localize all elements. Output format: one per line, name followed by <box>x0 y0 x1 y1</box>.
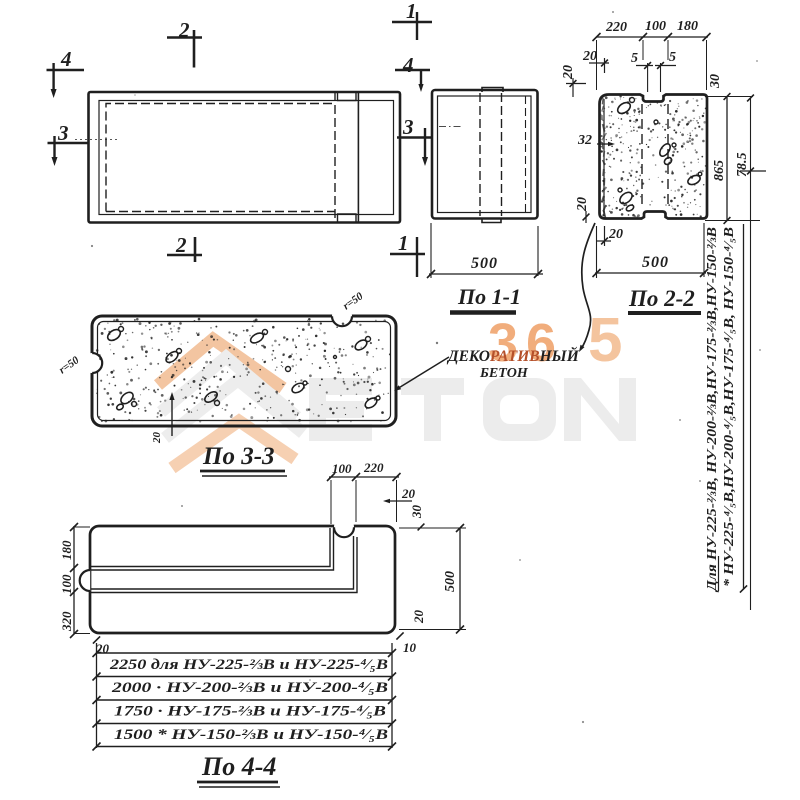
svg-text:320: 320 <box>59 611 74 632</box>
svg-text:32: 32 <box>577 133 592 148</box>
svg-text:20: 20 <box>575 197 590 212</box>
svg-text:ДЕКОРАТИВНЫЙ: ДЕКОРАТИВНЫЙ <box>446 347 580 365</box>
svg-text:180: 180 <box>677 19 698 34</box>
svg-text:3: 3 <box>57 121 69 145</box>
svg-text:100: 100 <box>332 461 352 476</box>
svg-text:10: 10 <box>403 640 417 655</box>
svg-text:По 2-2: По 2-2 <box>628 286 695 311</box>
svg-text:1750 · НУ-175-⅔В и НУ-175-⁴⁄: 1750 · НУ-175-⅔В и НУ-175-⁴⁄₅В <box>114 704 386 720</box>
svg-text:4: 4 <box>60 47 72 71</box>
svg-text:1: 1 <box>398 231 409 255</box>
svg-text:30: 30 <box>708 74 723 89</box>
svg-text:* НУ-225-⁴⁄₅В,НУ-200-⁴⁄₅В,НУ-1: * НУ-225-⁴⁄₅В,НУ-200-⁴⁄₅В,НУ-175-⁴⁄₅В, Н… <box>721 227 736 587</box>
svg-text:3: 3 <box>402 115 414 139</box>
svg-text:20: 20 <box>582 49 597 64</box>
svg-text:2: 2 <box>175 233 187 257</box>
svg-text:20: 20 <box>561 65 576 80</box>
svg-text:По 1-1: По 1-1 <box>457 284 521 309</box>
svg-text:500: 500 <box>471 255 498 272</box>
svg-text:100: 100 <box>59 574 74 594</box>
svg-text:30: 30 <box>409 505 424 520</box>
svg-text:20: 20 <box>95 641 110 656</box>
svg-text:20: 20 <box>401 486 416 501</box>
svg-text:2250 для НУ-225-⅔В и НУ-225-⁴⁄: 2250 для НУ-225-⅔В и НУ-225-⁴⁄₅В <box>109 657 388 673</box>
svg-text:500: 500 <box>642 254 669 271</box>
svg-text:1: 1 <box>406 0 417 23</box>
svg-text:20: 20 <box>151 432 163 445</box>
svg-text:По 3-3: По 3-3 <box>202 443 275 470</box>
svg-text:4: 4 <box>402 53 414 77</box>
svg-text:20: 20 <box>411 610 426 625</box>
svg-text:78.5: 78.5 <box>735 153 750 178</box>
svg-text:5: 5 <box>588 306 622 375</box>
svg-text:БЕТОН: БЕТОН <box>479 366 529 381</box>
svg-text:5: 5 <box>669 50 676 65</box>
svg-text:20: 20 <box>608 227 623 242</box>
svg-text:865: 865 <box>712 160 727 181</box>
svg-text:По 4-4: По 4-4 <box>201 752 276 781</box>
svg-text:220: 220 <box>605 20 627 35</box>
svg-text:2000 · НУ-200-⅔В и НУ-200-⁴⁄: 2000 · НУ-200-⅔В и НУ-200-⁴⁄₅В <box>111 680 388 696</box>
svg-text:220: 220 <box>363 460 384 475</box>
svg-text:5: 5 <box>631 51 638 66</box>
svg-text:180: 180 <box>59 540 74 560</box>
svg-text:1500 * НУ-150-⅔В и НУ-150-⁴⁄₅В: 1500 * НУ-150-⅔В и НУ-150-⁴⁄₅В <box>114 727 388 743</box>
svg-text:500: 500 <box>443 571 458 592</box>
svg-text:Для НУ-225-⅔В, НУ-200-⅔В,НУ-17: Для НУ-225-⅔В, НУ-200-⅔В,НУ-175-⅔В,НУ-15… <box>704 227 719 593</box>
svg-text:100: 100 <box>645 19 666 34</box>
